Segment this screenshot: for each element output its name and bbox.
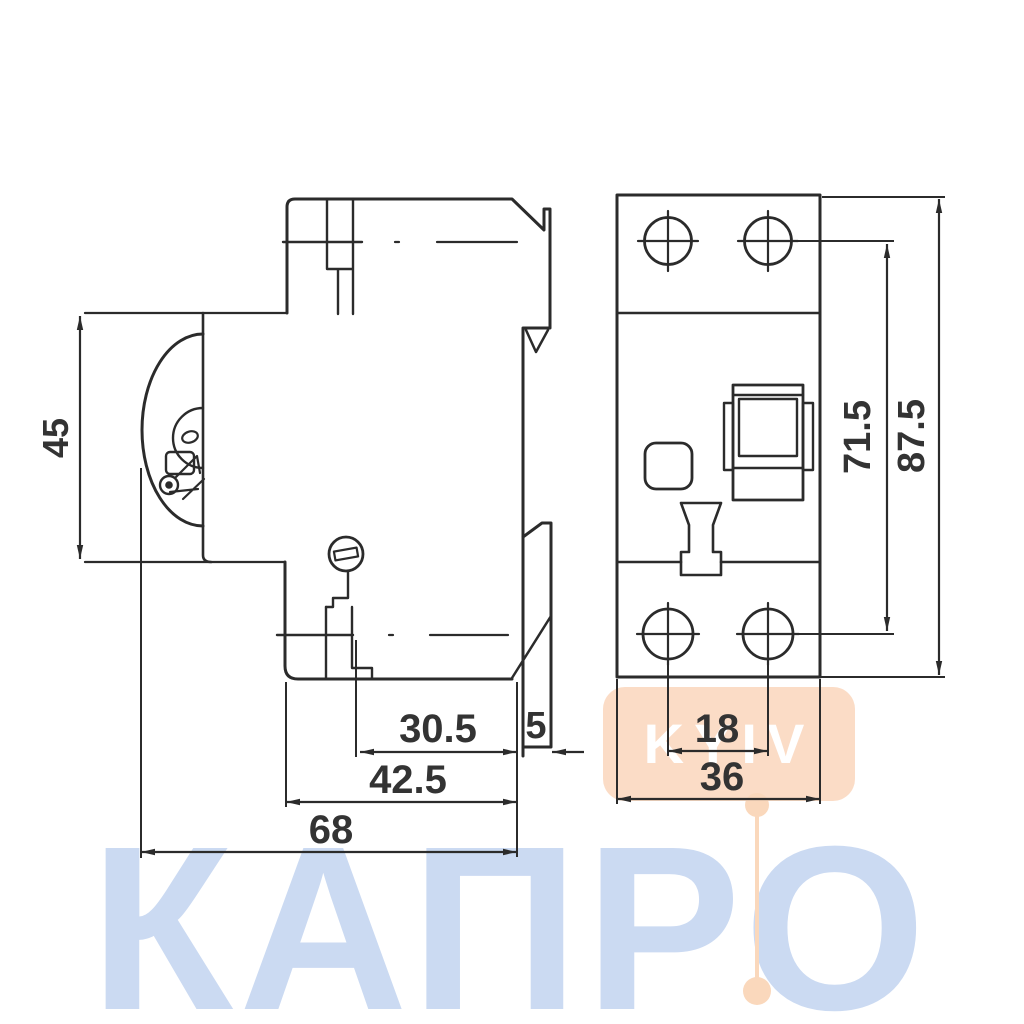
din-hook-notch bbox=[526, 330, 548, 352]
bulge-chord bbox=[203, 313, 211, 562]
dim-label-87-5: 87.5 bbox=[891, 399, 933, 473]
front-shoulders bbox=[85, 313, 287, 562]
terminal-screws bbox=[637, 211, 799, 665]
dim-label-30-5: 30.5 bbox=[399, 707, 477, 751]
bottom-terminal-channel bbox=[326, 571, 348, 607]
trip-mechanism bbox=[160, 408, 204, 499]
reset-lever bbox=[681, 503, 721, 575]
dim-label-36: 36 bbox=[700, 755, 745, 799]
dim-label-68: 68 bbox=[309, 808, 354, 852]
dim-label-71-5: 71.5 bbox=[837, 400, 879, 474]
dim-label-42-5: 42.5 bbox=[369, 758, 447, 802]
terminal-screw-slot bbox=[334, 548, 358, 561]
bottom-terminal-slot bbox=[326, 607, 372, 679]
front-body-outline bbox=[617, 195, 820, 677]
bulge-arc bbox=[142, 334, 203, 526]
technical-drawing-page: КАПРО KYIV bbox=[0, 0, 1024, 1024]
side-bottom-outline bbox=[285, 562, 512, 679]
side-view: 45 30.5 5 42.5 68 bbox=[35, 199, 584, 858]
top-terminal-slot bbox=[327, 199, 353, 314]
side-view-dimensions: 45 30.5 5 42.5 68 bbox=[35, 316, 584, 858]
dim-label-5: 5 bbox=[525, 705, 546, 747]
dim-label-45: 45 bbox=[35, 418, 76, 458]
test-button bbox=[645, 443, 692, 489]
dimension-drawing-canvas: 45 30.5 5 42.5 68 bbox=[0, 0, 1024, 1024]
din-clip-slot bbox=[512, 616, 551, 678]
toggle-switch bbox=[724, 385, 813, 500]
dim-label-18: 18 bbox=[695, 707, 740, 751]
front-view: 87.5 71.5 18 36 bbox=[617, 195, 945, 804]
